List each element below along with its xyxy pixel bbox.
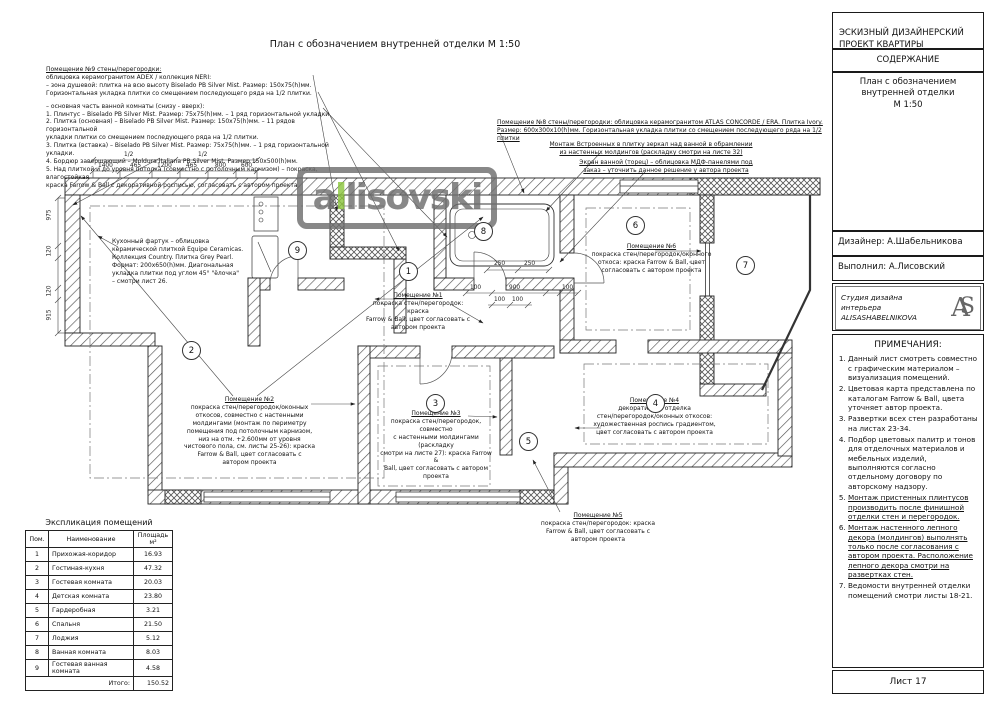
- note-item: Развертки всех стен разработаны на листа…: [848, 414, 979, 433]
- dim-label: 915: [47, 309, 53, 320]
- table-cell: 4.58: [134, 660, 173, 677]
- note-room2: Помещение №2 покраска стен/перегородок/о…: [183, 396, 316, 467]
- note-room3-body: покраска стен/перегородок, совместно с н…: [378, 418, 494, 481]
- studio-monogram: AS: [951, 295, 975, 321]
- table-cell: 21.50: [134, 618, 173, 632]
- notes-list: Данный лист смотреть совместно с графиче…: [833, 354, 983, 600]
- note-room6: Помещение №6 покраска стен/перегородок/о…: [588, 243, 715, 275]
- titleblock-executor-text: Выполнил: А.Лисовский: [833, 257, 983, 278]
- table-cell: Лоджия: [49, 632, 134, 646]
- note-bath-screen-text: Экран ванной (торец) – облицовка МДФ-пан…: [545, 159, 787, 175]
- table-cell: 5.12: [134, 632, 173, 646]
- table-cell: 47.32: [134, 562, 173, 576]
- note-room5-title: Помещение №5: [540, 512, 656, 520]
- legend-total-row: Итого: 150.52: [26, 677, 173, 691]
- legend-row: 9Гостевая ванная комната4.58: [26, 660, 173, 677]
- table-cell: 9: [26, 660, 49, 677]
- legend-row: 6Спальня21.50: [26, 618, 173, 632]
- table-cell: 23.80: [134, 590, 173, 604]
- titleblock-project: ЭСКИЗНЫЙ ДИЗАЙНЕРСКИЙ ПРОЕКТ КВАРТИРЫ: [832, 12, 984, 49]
- table-cell: 6: [26, 618, 49, 632]
- table-cell: Ванная комната: [49, 646, 134, 660]
- table-cell: 5: [26, 604, 49, 618]
- table-cell: 3.21: [134, 604, 173, 618]
- titleblock-contents-label: СОДЕРЖАНИЕ: [833, 50, 983, 66]
- plan-title: План с обозначением внутренней отделки М…: [245, 39, 545, 50]
- room-marker-4: 4: [646, 394, 665, 413]
- note-mirror: Монтаж Встроенных в плитку зеркал над ва…: [520, 141, 782, 157]
- table-cell: 4: [26, 590, 49, 604]
- table-cell: Детская комната: [49, 590, 134, 604]
- room-marker-1: 1: [399, 262, 418, 281]
- studio-name: Студия дизайна интерьера ALISASHABELNIKO…: [841, 293, 917, 322]
- titleblock-designer: Дизайнер: А.Шабельникова: [832, 231, 984, 256]
- room-marker-7: 7: [736, 256, 755, 275]
- dim-label: 100: [562, 285, 573, 291]
- legend-row: 2Гостиная-кухня47.32: [26, 562, 173, 576]
- drawing-sheet: { "plan": { "title": "План с обозначение…: [0, 0, 990, 724]
- table-cell: 16.93: [134, 548, 173, 562]
- legend-row: 1Прихожая-коридор16.93: [26, 548, 173, 562]
- note-item: Цветовая карта представлена по каталогам…: [848, 384, 979, 412]
- note-kitchen: Кухонный фартук – облицовка керамической…: [112, 238, 270, 285]
- note-room8-title: Помещение №8 стены/перегородки: облицовк…: [497, 119, 829, 127]
- note-bath-screen: Экран ванной (торец) – облицовка МДФ-пан…: [545, 159, 787, 175]
- note-item: Подбор цветовых палитр и тонов для отдел…: [848, 435, 979, 491]
- dim-label: 250: [524, 261, 535, 267]
- studio-stamp: Студия дизайна интерьера ALISASHABELNIKO…: [832, 283, 984, 331]
- dim-label: 250: [494, 261, 505, 267]
- table-cell: Гостевая ванная комната: [49, 660, 134, 677]
- note-item: Ведомости внутренней отделки помещений с…: [848, 581, 979, 600]
- note-room6-title: Помещение №6: [588, 243, 715, 251]
- legend-total-value: 150.52: [134, 677, 173, 691]
- table-header: Пом.: [26, 531, 49, 548]
- dim-label: 100: [470, 285, 481, 291]
- table-cell: Гардеробная: [49, 604, 134, 618]
- room-marker-8: 8: [474, 222, 493, 241]
- notes-title: ПРИМЕЧАНИЯ:: [833, 339, 983, 351]
- watermark-part2: lisovski: [345, 177, 481, 218]
- watermark-logo: allisovski: [297, 167, 497, 229]
- titleblock-designer-text: Дизайнер: А.Шабельникова: [833, 232, 983, 253]
- note-room2-body: покраска стен/перегородок/оконных откосо…: [183, 404, 316, 467]
- note-room9-header: Помещение №9 стены/перегородки:: [46, 66, 346, 74]
- table-cell: 8: [26, 646, 49, 660]
- table-cell: Гостиная-кухня: [49, 562, 134, 576]
- titleblock-contents-item-text: План с обозначением внутренней отделки М…: [833, 73, 983, 115]
- legend-row: 7Лоджия5.12: [26, 632, 173, 646]
- dim-label: 900: [509, 285, 520, 291]
- table-cell: 7: [26, 632, 49, 646]
- note-room2-title: Помещение №2: [183, 396, 316, 404]
- dim-label: 100: [512, 297, 523, 303]
- room-marker-9: 9: [288, 241, 307, 260]
- note-item: Монтаж настенного лепного декора (молдин…: [848, 523, 979, 579]
- titleblock-contents-header: СОДЕРЖАНИЕ: [832, 49, 984, 72]
- note-room8: Помещение №8 стены/перегородки: облицовк…: [497, 119, 829, 143]
- dim-label: 975: [47, 209, 53, 220]
- legend-header-row: Пом. Наименование Площадь м²: [26, 531, 173, 548]
- note-mirror-text: Монтаж Встроенных в плитку зеркал над ва…: [520, 141, 782, 157]
- watermark-accent: l: [335, 177, 345, 218]
- table-cell: Гостевая комната: [49, 576, 134, 590]
- note-item: Монтаж пристенных плинтусов производить …: [848, 493, 979, 521]
- note-item: Данный лист смотреть совместно с графиче…: [848, 354, 979, 382]
- table-cell: Прихожая-коридор: [49, 548, 134, 562]
- table-header: Площадь м²: [134, 531, 173, 548]
- titleblock-notes: ПРИМЕЧАНИЯ: Данный лист смотреть совмест…: [832, 334, 984, 668]
- titleblock-contents-item: План с обозначением внутренней отделки М…: [832, 72, 984, 231]
- room-marker-3: 3: [426, 394, 445, 413]
- titleblock-executor: Выполнил: А.Лисовский: [832, 256, 984, 281]
- room-marker-2: 2: [182, 341, 201, 360]
- note-room1: Помещение №1 покраска стен/перегородок: …: [362, 292, 474, 332]
- note-kitchen-text: Кухонный фартук – облицовка керамической…: [112, 238, 270, 285]
- legend-row: 8Ванная комната8.03: [26, 646, 173, 660]
- table-cell: 2: [26, 562, 49, 576]
- dim-label: 120: [47, 285, 53, 296]
- room-marker-5: 5: [519, 432, 538, 451]
- note-room5: Помещение №5 покраска стен/перегородок: …: [540, 512, 656, 544]
- note-room5-body: покраска стен/перегородок: краска Farrow…: [540, 520, 656, 544]
- note-room9-intro: облицовка керамогранитом ADEX / коллекци…: [46, 74, 346, 98]
- table-cell: 8.03: [134, 646, 173, 660]
- legend-row: 4Детская комната23.80: [26, 590, 173, 604]
- note-room1-body: покраска стен/перегородок: краска Farrow…: [362, 300, 474, 332]
- note-room6-body: покраска стен/перегородок/оконного откос…: [588, 251, 715, 275]
- room-marker-6: 6: [626, 216, 645, 235]
- table-cell: 20.03: [134, 576, 173, 590]
- legend-total-label: Итого:: [26, 677, 134, 691]
- legend-row: 5Гардеробная3.21: [26, 604, 173, 618]
- sheet-number-text: Лист 17: [833, 671, 983, 688]
- dim-label: 100: [494, 297, 505, 303]
- dim-label: 120: [47, 245, 53, 256]
- note-room3: Помещение №3 покраска стен/перегородок, …: [378, 410, 494, 481]
- monogram-s: S: [960, 294, 975, 319]
- table-cell: 3: [26, 576, 49, 590]
- legend-table: Экспликация помещений Пом. Наименование …: [25, 518, 173, 691]
- legend-row: 3Гостевая комната20.03: [26, 576, 173, 590]
- table-cell: 1: [26, 548, 49, 562]
- sheet-number: Лист 17: [832, 670, 984, 694]
- legend-title: Экспликация помещений: [25, 518, 173, 527]
- note-room1-title: Помещение №1: [362, 292, 474, 300]
- table-header: Наименование: [49, 531, 134, 548]
- watermark-part1: a: [313, 177, 335, 218]
- table-cell: Спальня: [49, 618, 134, 632]
